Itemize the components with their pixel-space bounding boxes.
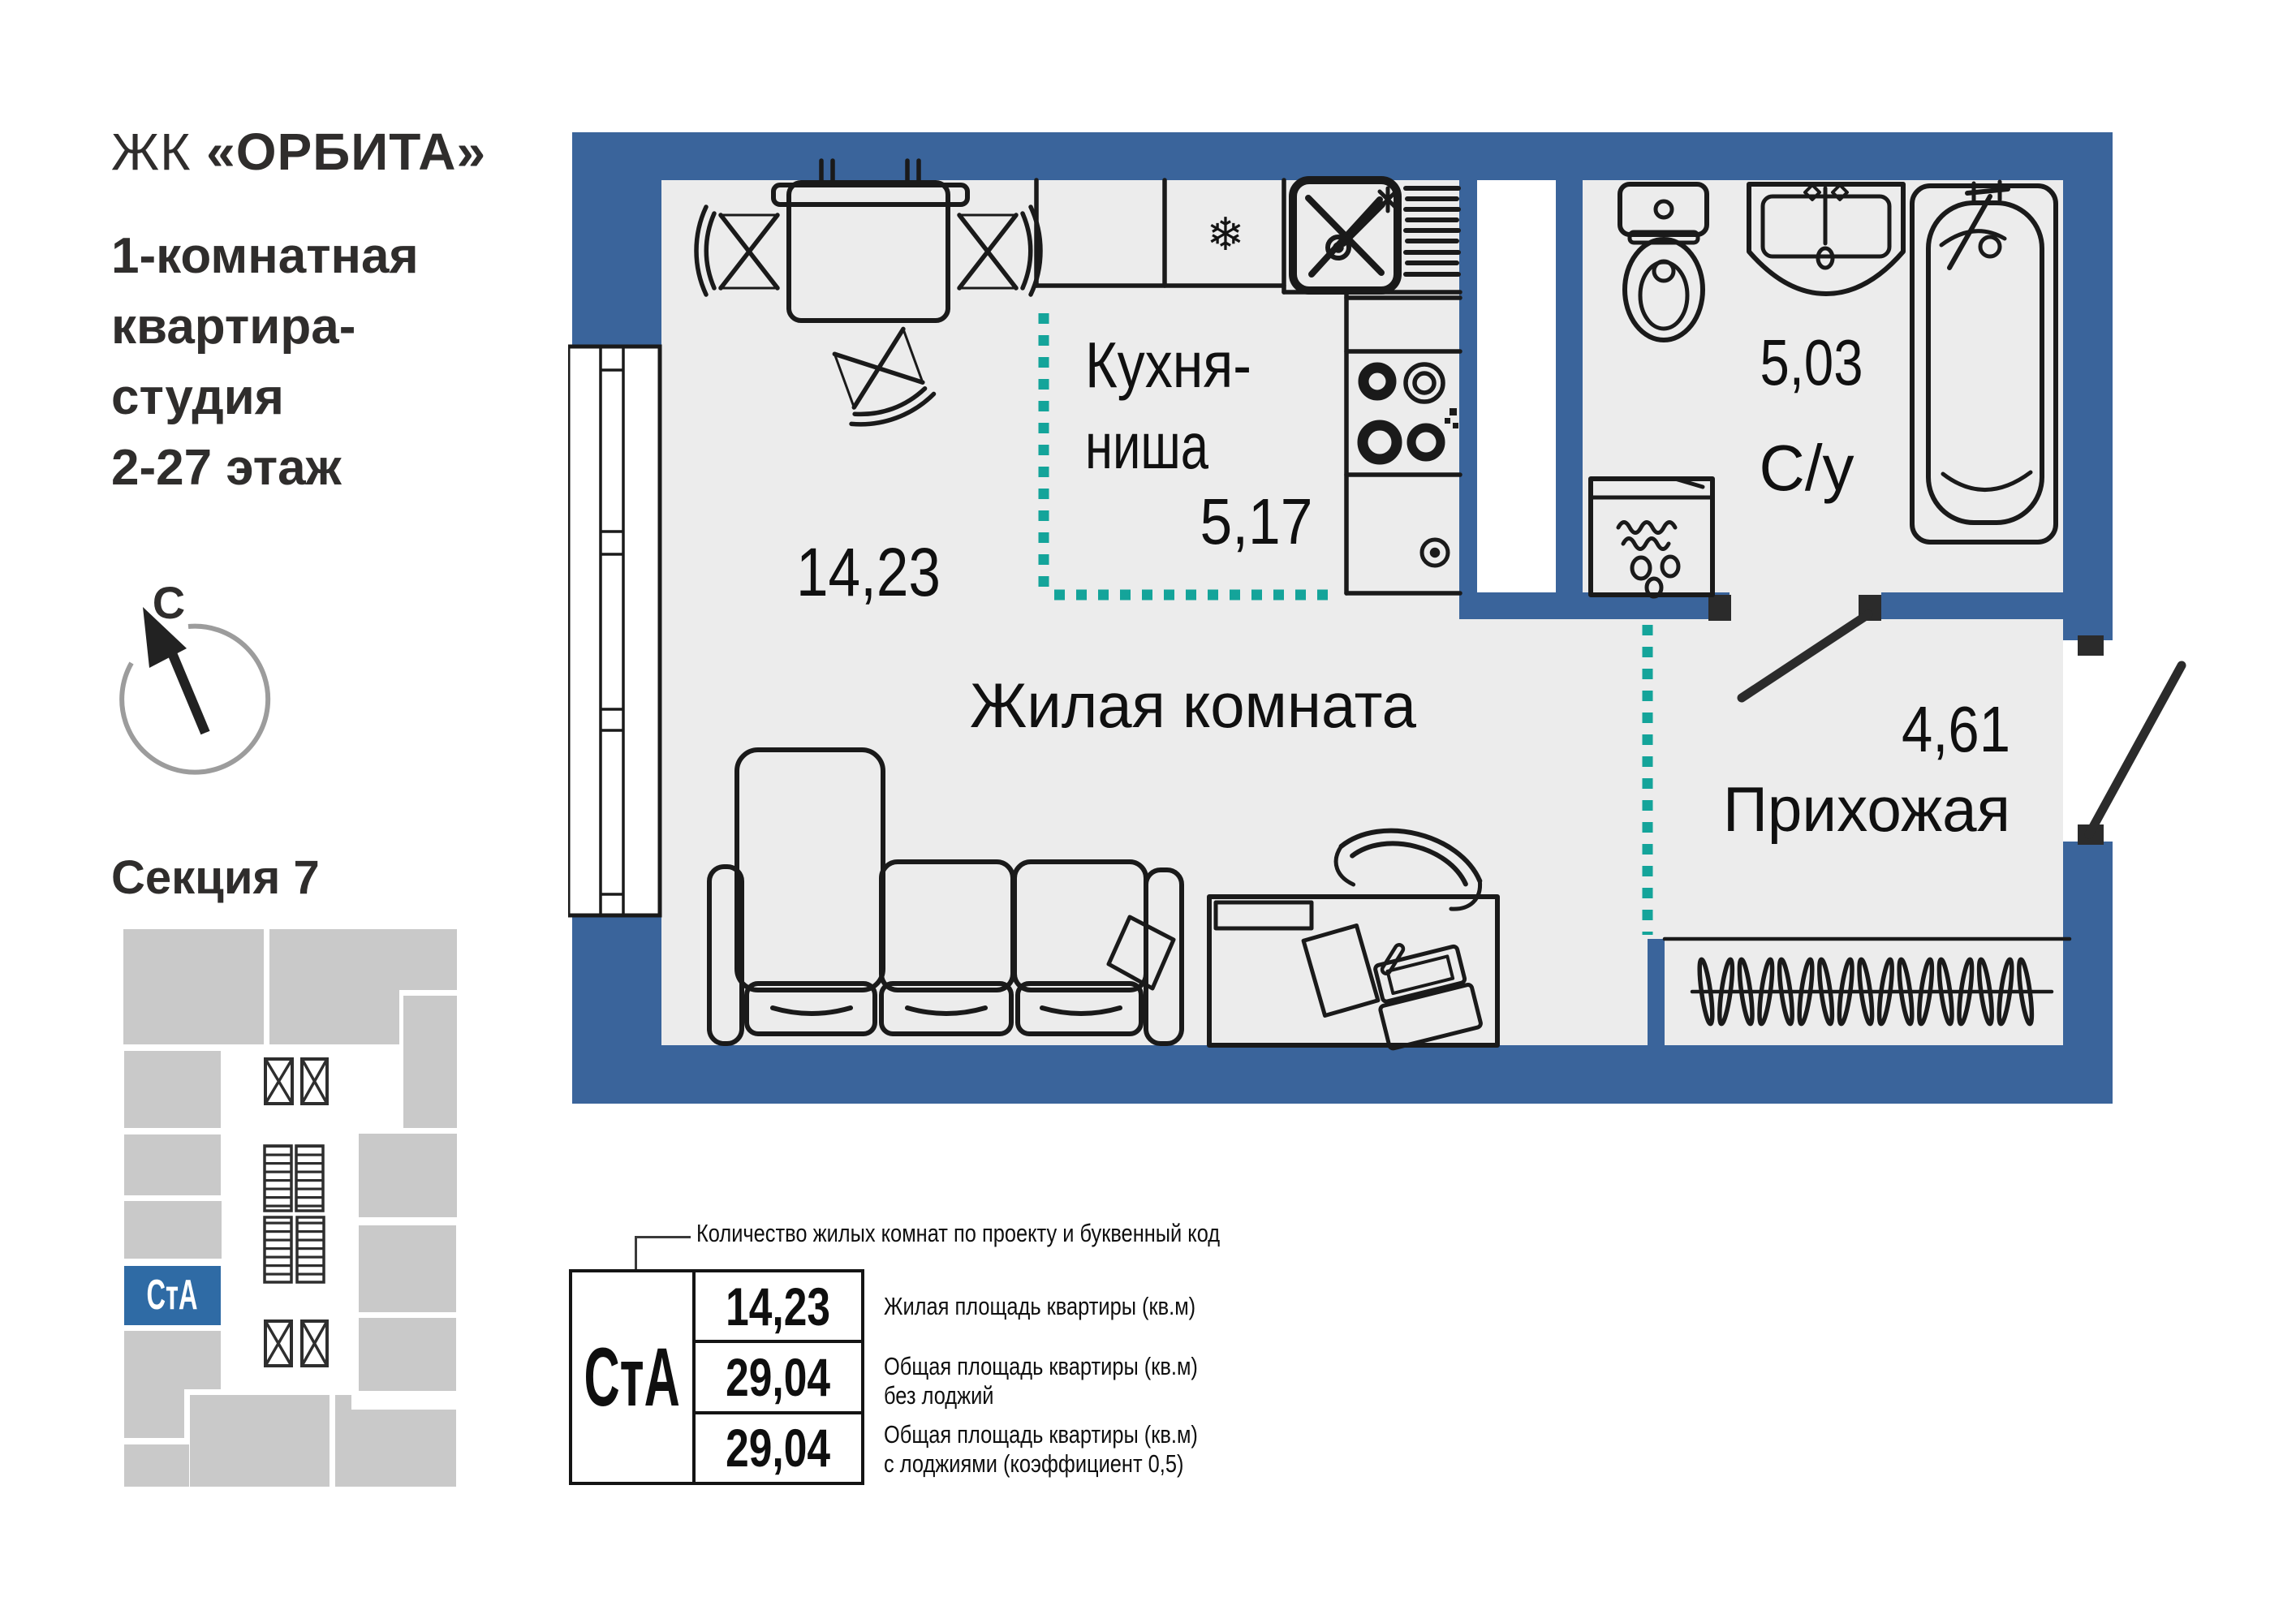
section-key-plan: СтА <box>120 925 461 1493</box>
keyplan-unit <box>335 1395 456 1487</box>
fridge-icon: ❄ <box>1207 209 1245 260</box>
unit-code: СтА <box>584 1330 680 1425</box>
legend-text: Жилая площадь квартиры (кв.м) <box>884 1292 1195 1321</box>
apartment-info-table: СтА 14,23 29,04 29,04 <box>569 1269 864 1485</box>
living-area-value: 14,23 <box>726 1276 831 1337</box>
keyplan-unit <box>123 929 264 1044</box>
wall-bathroom-bottom <box>1881 592 2063 619</box>
wall-left-upper <box>572 132 661 347</box>
window-icon <box>568 347 660 915</box>
flyer-page: { "header": { "project_prefix": "ЖК", "p… <box>0 0 2296 1623</box>
legend-text: с лоджиями (коэффициент 0,5) <box>884 1449 1183 1479</box>
keyplan-highlighted-unit: СтА <box>124 1266 221 1325</box>
keyplan-unit <box>124 1444 189 1487</box>
keyplan-unit <box>124 1201 222 1259</box>
wall-right-upper <box>2063 132 2113 640</box>
wall-kitchen-partition <box>1459 180 1477 597</box>
keyplan-unit <box>124 1134 221 1195</box>
total-area-value: 29,04 <box>726 1346 831 1408</box>
legend-row-label: Жилая площадь квартиры (кв.м) <box>884 1292 1264 1321</box>
compass: С <box>97 552 300 795</box>
callout-line <box>635 1236 691 1274</box>
kitchen-label: Кухня- <box>1085 329 1251 401</box>
wall-wardrobe-stub <box>1648 939 1665 1045</box>
info-table-values: 14,23 29,04 29,04 <box>696 1272 861 1482</box>
stairs-icon <box>265 1217 291 1282</box>
callout-label: Количество жилых комнат по проекту и бук… <box>696 1219 1335 1248</box>
keyplan-elevators <box>265 1059 327 1366</box>
dish-rack-icon <box>1406 188 1458 274</box>
stairs-icon <box>265 1146 291 1211</box>
subtitle-line: квартира- <box>111 291 419 362</box>
vent-shaft <box>1477 180 1556 592</box>
kitchen-label: ниша <box>1085 410 1208 482</box>
entrance-door-leaf <box>2089 665 2182 834</box>
bathroom-label: С/у <box>1760 432 1854 504</box>
keyplan-unit <box>359 1318 456 1391</box>
table-row: 29,04 <box>696 1411 861 1482</box>
bathroom-area: 5,03 <box>1760 326 1863 398</box>
subtitle-line: 1-комнатная <box>111 221 419 291</box>
project-title: ЖК «ОРБИТА» <box>111 122 486 182</box>
wall-top <box>572 132 2113 180</box>
floor-plan: ❄ <box>568 130 2199 1112</box>
wall-bottom <box>572 1045 2113 1104</box>
hallway-area: 4,61 <box>1902 693 2010 765</box>
floor <box>661 180 2063 1045</box>
wall-bathroom-left <box>1556 180 1583 597</box>
total-area-with-loggia-value: 29,04 <box>726 1417 831 1479</box>
info-table-code-cell: СтА <box>572 1272 696 1482</box>
keyplan-unit-code: СтА <box>147 1272 198 1319</box>
section-title: Секция 7 <box>111 850 320 905</box>
legend-row-label: Общая площадь квартиры (кв.м) с лоджиями… <box>884 1420 1267 1479</box>
table-row: 29,04 <box>696 1340 861 1410</box>
stairs-icon <box>297 1217 324 1282</box>
compass-north-label: С <box>153 577 185 628</box>
subtitle-line: 2-27 этаж <box>111 433 419 503</box>
keyplan-unit <box>359 1134 457 1217</box>
keyplan-stairs <box>265 1146 324 1282</box>
project-title-name: «ОРБИТА» <box>206 123 486 181</box>
living-area: 14,23 <box>796 534 941 610</box>
legend-text: Общая площадь квартиры (кв.м) <box>884 1420 1198 1449</box>
stairs-icon <box>296 1146 323 1211</box>
subtitle-line: студия <box>111 362 419 433</box>
keyplan-unit <box>359 1225 456 1312</box>
kitchen-area: 5,17 <box>1200 485 1313 558</box>
legend-text: без лоджий <box>884 1381 994 1410</box>
wall-right-lower <box>2063 842 2113 1045</box>
legend-row-label: Общая площадь квартиры (кв.м) без лоджий <box>884 1352 1267 1410</box>
legend-text: Общая площадь квартиры (кв.м) <box>884 1352 1198 1381</box>
keyplan-unit <box>403 996 457 1128</box>
keyplan-unit <box>124 1051 221 1128</box>
apartment-subtitle: 1-комнатная квартира- студия 2-27 этаж <box>111 221 419 503</box>
project-title-prefix: ЖК <box>111 123 191 181</box>
table-row: 14,23 <box>696 1272 861 1340</box>
hallway-label: Прихожая <box>1723 773 2010 845</box>
keyplan-unit <box>190 1395 330 1487</box>
callout-label-text: Количество жилых комнат по проекту и бук… <box>696 1219 1220 1248</box>
living-label: Жилая комната <box>970 669 1417 741</box>
